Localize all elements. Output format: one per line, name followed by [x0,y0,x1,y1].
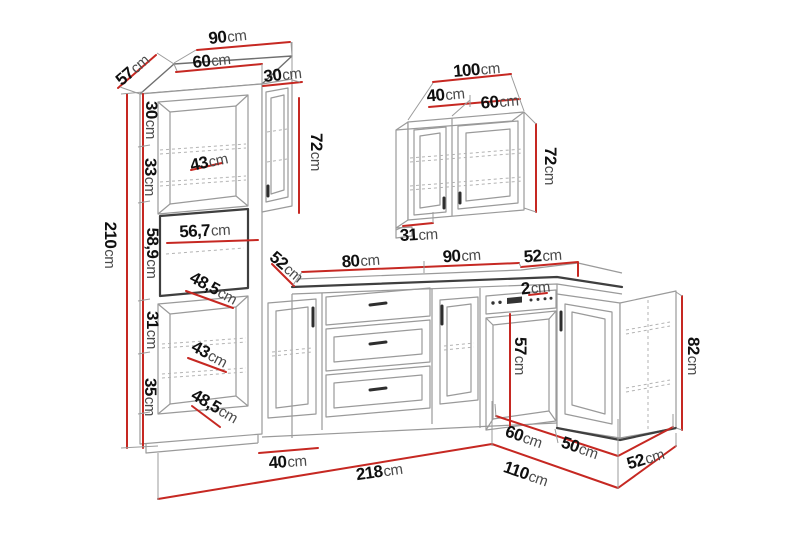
dim-right-run-height: 82cm [684,337,703,375]
diagram-canvas: 90cm 60cm 57cm 30cm 30cm 33cm 43cm 72cm … [0,0,800,533]
wall-cabinet [396,112,524,238]
dim-tall-top-main-width: 60cm [192,49,232,72]
dim-counter-left-depth: 52cm [266,247,307,286]
kitchen-dimension-diagram: 90cm 60cm 57cm 30cm 30cm 33cm 43cm 72cm … [0,0,800,533]
dim-wall-cab-door1-width: 40cm [426,83,465,105]
dim-counter-section2-width: 90cm [442,245,481,267]
side-wall-cabinet [262,79,292,212]
dim-base-cab-width: 40cm [268,451,307,473]
dim-tall-upper-section2-height: 33cm [141,158,160,196]
dim-counter-section1-width: 80cm [341,250,380,272]
dim-tall-upper-section1-height: 30cm [142,101,161,139]
dim-tall-lower-section2-height: 35cm [141,378,160,416]
dim-oven-door-height: 57cm [511,337,530,375]
dim-tall-total-height: 210cm [101,222,120,269]
dim-wall-cab-depth: 31cm [399,224,438,245]
dim-counter-corner-depth: 52cm [523,245,562,267]
dim-tall-top-depth: 57cm [112,50,153,89]
right-cabinet-run [557,291,676,440]
dim-side-wall-cab-height: 72cm [307,133,326,171]
dim-left-run-total-length: 218cm [355,459,404,484]
dim-tall-lower-section1-height: 31cm [143,311,162,349]
dim-tall-top-total-width: 90cm [208,25,248,48]
dim-counter-overhang: 2cm [520,277,551,299]
dim-wall-cab-height: 72cm [541,147,560,185]
dim-right-run-cab1-width: 60cm [503,422,545,452]
dim-tall-niche-width: 56,7cm [179,220,231,242]
dim-wall-cab-total-width: 100cm [452,58,500,81]
dim-tall-top-side-width: 30cm [263,63,303,86]
dim-tall-niche-height: 58,9cm [143,228,162,279]
dim-wall-cab-door2-width: 60cm [480,90,519,112]
dim-right-run-cab2-width: 50cm [559,433,601,463]
